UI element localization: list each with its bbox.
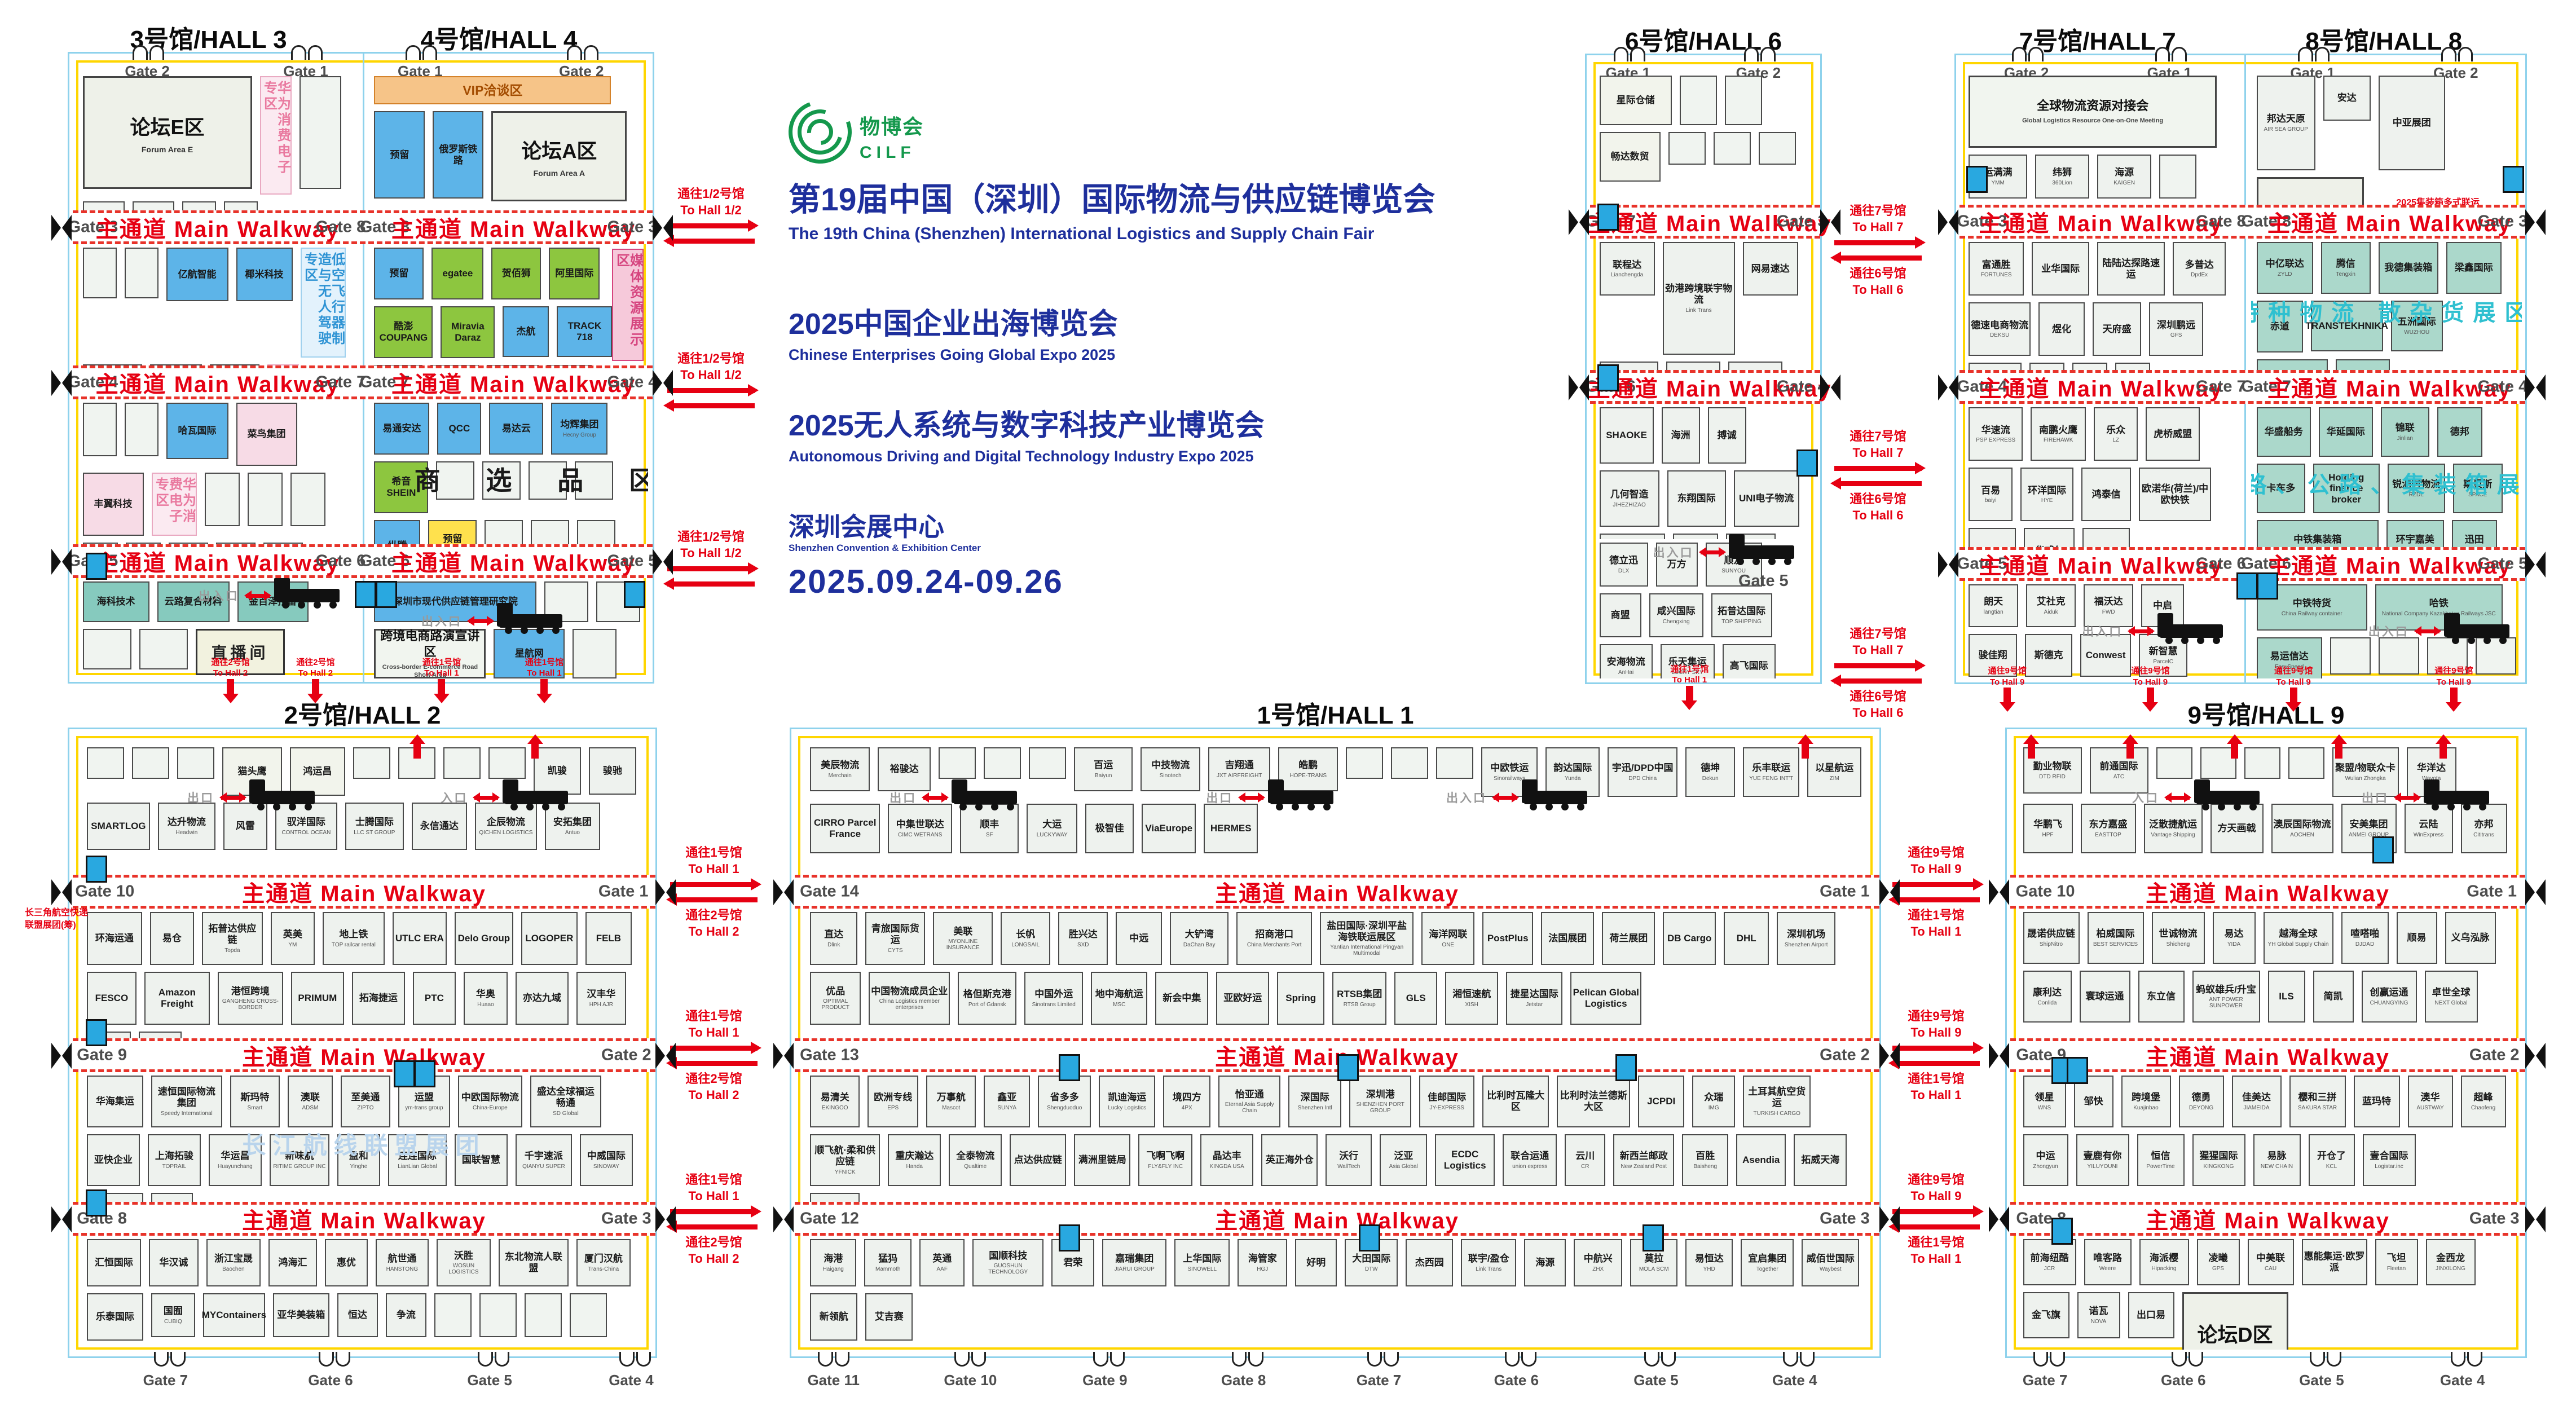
connector-label: To Hall 1 [688, 1025, 739, 1041]
booth: 驭洋国际CONTROL OCEAN [275, 803, 337, 850]
booth-name: 斯玛特 [240, 1092, 269, 1103]
booth: 美辰物流Merchain [810, 747, 870, 791]
booth: 华奥Huaao [464, 972, 508, 1025]
booth: 星际仓储 [1600, 76, 1672, 125]
booth-name-en: National Company Kazakhstan Railways JSC [2382, 611, 2496, 617]
folding-door-icon [51, 215, 72, 241]
gate-door-icon [319, 1352, 350, 1367]
main-walkway: Gate 8主通道 Main WalkwayGate 3 [73, 1202, 655, 1236]
booth-name: 新西兰邮政 [1620, 1151, 1668, 1162]
folding-door-icon [773, 879, 794, 905]
booth: 长帆LONGSAIL [1001, 912, 1050, 965]
hall-connector: 通往9号馆To Hall 9通往1号馆To Hall 1 [1892, 1172, 1980, 1267]
booth-name: 越海全球 [2279, 928, 2318, 940]
booth-name: UTLC ERA [395, 933, 444, 944]
folding-door-icon [655, 879, 676, 905]
booth: 丰翼科技 [83, 473, 144, 536]
booth-name: Delo Group [458, 933, 510, 944]
train-silhouette-icon [1731, 545, 1794, 559]
booth-name-en: ZIM [1830, 775, 1839, 782]
booth-name: 多普达 [2185, 259, 2214, 271]
red-double-arrow-icon [221, 796, 245, 800]
booth-name: 驭洋国际 [287, 817, 325, 828]
booth-name-en: MSC [1113, 1002, 1125, 1008]
booth-name: 几何智造 [1610, 489, 1649, 500]
gate-label: Gate 9 [77, 1046, 127, 1065]
expo3-title-cn: 2025无人系统与数字科技产业博览会 [789, 402, 1265, 444]
booth: Conwest [2080, 634, 2131, 677]
booth-name: 义乌泓脉 [2451, 932, 2490, 944]
booth: 荷兰展团 [1602, 912, 1655, 965]
gate-label: Gate 3 [2469, 1210, 2520, 1228]
connector-label: To Hall 1 [688, 861, 739, 878]
booth: QCC [437, 403, 481, 455]
arrow-right-icon [1834, 663, 1922, 668]
booth-name: QCC [449, 423, 470, 434]
blue-marker [1796, 450, 1818, 477]
booth: 裕骏达 [878, 747, 931, 791]
blue-marker [2067, 1057, 2088, 1084]
booth-name-en: Together [1756, 1266, 1778, 1272]
booth-name: 厦门汉航 [584, 1253, 623, 1264]
booth-name: 土耳其航空货运 [1745, 1086, 1808, 1108]
booth-name: 鸿运昌 [303, 766, 332, 777]
booth-name-en: EASTTOP [2095, 832, 2121, 838]
booth-name: 锦联 [2396, 422, 2415, 434]
booth: 东北物流人联盟 [499, 1239, 569, 1286]
booth-name: 汉丰华 [587, 989, 615, 1000]
booth: 顺飞航·柔和供应链YFNICK [810, 1134, 880, 1186]
booth-name-en: LianLian Global [398, 1164, 437, 1170]
train-icon: 出入口 [1653, 544, 1794, 561]
booth: 富通胜FORTUNES [1969, 242, 2024, 296]
booth: 英正海外仓 [1261, 1134, 1318, 1186]
booth-name-en: Sinotech [1160, 773, 1182, 779]
booth-name: 椰米科技 [245, 269, 284, 280]
booth: 国顺科技GUOSHUN TECHNOLOGY [972, 1239, 1043, 1286]
gate-label: Gate 2 [601, 1046, 651, 1065]
booth-name: 易达云 [502, 423, 531, 434]
booth-name-en: HGJ [1257, 1266, 1268, 1272]
booth-name: 德速电商物流 [1971, 320, 2028, 331]
arrow-left-icon [1834, 481, 1922, 486]
booth-name: 环洋国际 [2028, 485, 2066, 496]
hall-3-4: Gate 2Gate 1Gate 1Gate 2Gate 3主通道 Main W… [68, 52, 654, 684]
booth: 拓威天海 [1794, 1134, 1847, 1186]
booth: PRIMUM [291, 972, 344, 1025]
hall-connector: 通往7号馆To Hall 7通往6号馆To Hall 6 [1834, 203, 1922, 298]
booth: 多普达DpdEx [2173, 242, 2226, 296]
walkway-label: 主通道 Main Walkway [1215, 875, 1459, 908]
booth-name-en: QICHEN LOGISTICS [479, 830, 532, 836]
booth-name-en: RZDL [2409, 492, 2424, 498]
booth-name-en: WUZHOU [2404, 329, 2429, 336]
booth-name-en: Jetstar [1526, 1002, 1543, 1008]
booth [573, 629, 617, 678]
booth [434, 1293, 472, 1337]
booth-name: 中远 [1129, 933, 1148, 944]
booth: 百易baiyi [1969, 468, 2013, 521]
walkway-label: 主通道 Main Walkway [242, 1039, 486, 1072]
booth-name: 百运 [1094, 760, 1113, 771]
booth: 鸿海汇 [268, 1239, 317, 1286]
walkway-label: 主通道 Main Walkway [2146, 875, 2390, 908]
booth: 环洋国际HYE [2020, 468, 2073, 521]
booth-name-en: WallTech [1337, 1164, 1360, 1170]
booth-name-en: Headwin [175, 830, 197, 836]
connector-label: To Hall 9 [1910, 1188, 1961, 1205]
booth-name: 亿航智能 [178, 269, 217, 280]
booth-name: PTC [425, 993, 444, 1004]
booth-name: 中国外运 [1034, 989, 1073, 1000]
connector-label: 通往7号馆 [1850, 626, 1906, 642]
booth-name-en: Waybest [1820, 1266, 1842, 1272]
booth: 争流 [386, 1293, 426, 1337]
red-double-arrow-icon [2396, 796, 2419, 800]
booth-name-en: CUBIQ [164, 1319, 182, 1325]
booth: 畅达数贸 [1600, 132, 1661, 182]
booth [83, 248, 117, 298]
booth: 柏威国际BEST SERVICES [2088, 912, 2144, 964]
booth-name: 蚂蚁雄兵/升宝 [2196, 984, 2256, 995]
gate-label: Gate 2 [1820, 1046, 1870, 1065]
booth-name: 安拓集团 [553, 817, 592, 828]
booth-name: 中铁集装箱 [2293, 534, 2341, 545]
booth: 艾吉赛 [865, 1293, 913, 1341]
booth-name: 企辰物流 [487, 817, 525, 828]
booth-name-en: WNS [2038, 1105, 2051, 1111]
booth-name-en: Huaao [477, 1002, 494, 1008]
folding-door-icon [51, 370, 72, 396]
booth: 亿航智能 [166, 248, 228, 301]
booth-name-en: AAF [936, 1266, 947, 1272]
booth-name: 飞啊飞啊 [1146, 1151, 1184, 1162]
booth-name: 易达 [2225, 928, 2244, 940]
booth-name: 顺易 [2407, 932, 2427, 944]
train-silhouette-icon [954, 791, 1017, 804]
booth-name: ECDC Logistics [1437, 1149, 1492, 1171]
booth-name: 华洋达 [2417, 763, 2446, 774]
booth-name-en: CIMC WETRANS [898, 832, 942, 838]
booth-name-en: FLY&FLY INC [1148, 1164, 1183, 1170]
booth: 亦邦Cititrans [2461, 804, 2507, 853]
booth [436, 461, 474, 500]
booth: 中铁集装箱China Railway container [2257, 520, 2379, 547]
train-silhouette-icon [2446, 624, 2509, 638]
gate-label: Gate 1 [598, 883, 649, 901]
booth: 易脉NEW CHAIN [2253, 1134, 2301, 1186]
booth-name: 宜启集团 [1748, 1253, 1786, 1264]
blue-marker [86, 856, 107, 883]
booth: 陆陆达探路速运 [2097, 242, 2165, 296]
entrance-exit-label: 出入口 [1653, 544, 1694, 561]
booth: 阿里国际 [549, 248, 600, 299]
blue-marker [1597, 204, 1619, 231]
booth-name-en: Merchain [829, 773, 852, 779]
arrow-label: To Hall 1 [1672, 675, 1707, 686]
booth-name: 金西龙 [2436, 1253, 2465, 1264]
booth: 德坤Dekun [1685, 747, 1735, 797]
connector-label: To Hall 1 [1910, 1087, 1961, 1104]
booth: 天府盛 [2093, 302, 2141, 356]
booth-name: ViaEurope [1145, 823, 1192, 834]
booth: DHL [1724, 912, 1769, 965]
booth: 隆宏 [151, 1193, 193, 1202]
booth-name-en: Weere [2099, 1266, 2116, 1272]
booth-name: 创赢运通 [2370, 987, 2408, 998]
booth-name-en: DpdEx [2191, 272, 2208, 278]
main-walkway: Gate 4主通道 Main WalkwayGate 7Gate 7主通道 Ma… [73, 365, 653, 399]
booth-name-en: HPH AJR [589, 1002, 613, 1008]
booth-name: 哈瓦国际 [178, 425, 217, 437]
folding-door-icon [1938, 209, 1958, 235]
booth: UTLC ERA [393, 912, 447, 965]
booth: 省多多Shengduoduo [1038, 1076, 1091, 1127]
booth-name: 以星航运 [1815, 763, 1853, 774]
booth: 易达YIDA [2213, 912, 2256, 964]
gate-label: Gate 4 [2440, 1372, 2485, 1389]
booth-name-en: ShipNitro [2040, 941, 2063, 948]
gate-label: Gate 6 [1494, 1372, 1539, 1389]
booth-section: 海港Haigang猛犸Mammoth英通AAF国顺科技GUOSHUN TECHN… [804, 1236, 1870, 1350]
booth-name: 海港 [824, 1253, 843, 1264]
booth: Dynasty Shipping LLC [2257, 359, 2328, 370]
booth: 虎桥威盟 [2146, 407, 2200, 461]
booth-name-en: FORTUNES [1981, 272, 2012, 278]
booth: 中国外运Sinotrans Limited [1024, 972, 1083, 1025]
booth-name: 虎桥威盟 [2154, 429, 2192, 440]
booth-name: 满洲里链局 [1078, 1154, 1126, 1166]
blue-marker [1615, 1054, 1637, 1081]
booth-section: 邦达天原AIR SEA GROUP安达中亚展团论坛C区Forum Area C2… [2251, 72, 2522, 205]
booth-name-en: Speedy International [161, 1110, 213, 1117]
booth: 格但斯克港Port of Gdansk [958, 972, 1016, 1025]
booth: 猛犸Mammoth [864, 1239, 911, 1286]
booth-name: 国顺科技 [989, 1250, 1027, 1262]
booth-name: 易恒达 [1695, 1253, 1724, 1264]
booth: 亚快企业 [87, 1134, 140, 1186]
direction-arrow [2227, 734, 2243, 759]
gate-label: Gate 8 [316, 218, 366, 237]
booth-name: 风雷 [236, 821, 255, 832]
red-double-arrow-icon [1494, 796, 1517, 800]
booth-name-en: YMM [1992, 180, 2005, 186]
booth: 境四方4PX [1163, 1076, 1210, 1127]
booth-name: Conwest [2086, 650, 2126, 661]
booth: 华威尔HUAWEIER [2024, 528, 2075, 547]
gate-label: Gate 10 [2016, 883, 2075, 901]
booth-name-en: Shicheng [2167, 941, 2190, 948]
blue-marker [2257, 572, 2278, 600]
arrow-label: 通往2号馆 [296, 657, 334, 668]
booth: Miravia Daraz [441, 306, 495, 358]
booth [529, 461, 567, 500]
booth-name: 沃行 [1339, 1151, 1358, 1162]
booth-name: 士腾国际 [355, 817, 394, 828]
booth-name: 韵达国际 [1553, 763, 1592, 774]
booth: 新会中集 [1155, 972, 1208, 1025]
booth-name-en: CONTROL OCEAN [281, 830, 331, 836]
booth: 海管家HGJ [1238, 1239, 1287, 1286]
arrow-label: 通往1号馆 [422, 657, 461, 668]
booth-name: 寰球运通 [2086, 991, 2124, 1002]
booth-section: SHAOKE海洲搏诚几何智造JIHEZHIZAO东翔国际UNI电子物流飞得快供应… [1594, 404, 1817, 539]
folding-door-icon [2525, 374, 2546, 400]
booth-name-en: SPACE [2468, 492, 2487, 498]
train-silhouette-icon [1270, 791, 1333, 804]
gate-label: Gate 7 [2196, 378, 2246, 396]
booth: 哈瓦国际 [166, 403, 228, 459]
booth: 连连国际LianLian Global [388, 1134, 447, 1186]
booth-name: 新味航 [285, 1151, 314, 1162]
folding-door-icon [1569, 374, 1589, 400]
booth: 壹鹿有你YILUYOUNI [2076, 1134, 2129, 1186]
booth-name: 中欧铁运 [1490, 763, 1529, 774]
booth: 商盟 [1600, 593, 1641, 637]
booth: 中运Zhongyun [2023, 1134, 2068, 1186]
connector-label: To Hall 2 [688, 1251, 739, 1267]
booth-name: 盐田国际·深圳平盐海铁联运展区 [1322, 920, 1411, 942]
booth-name-en: QIANYU SUPER [522, 1164, 565, 1170]
booth-name: 湘恒速航 [1452, 989, 1491, 1000]
booth-name: 纬狮 [2053, 167, 2072, 178]
hall-connector: 通往9号馆To Hall 9通往1号馆To Hall 1 [1892, 1008, 1980, 1103]
booth [2115, 363, 2150, 370]
arrow-right-icon [1892, 1209, 1980, 1214]
booth [570, 1293, 607, 1337]
booth: 沃行WallTech [1326, 1134, 1372, 1186]
booth-name: Pelican Global Logistics [1573, 987, 1639, 1009]
booth-name: 美联 [953, 926, 972, 937]
booth-name: 德勇 [2192, 1092, 2211, 1103]
booth: 湘恒速航XISH [1445, 972, 1498, 1025]
booth: 极智佳 [1085, 804, 1134, 853]
booth: 艾社克Aiduk [2026, 584, 2076, 627]
booth-name: GLS [1406, 993, 1426, 1004]
arrow-right-icon [1892, 1046, 1980, 1051]
booth-name: 南鹏火鹰 [2039, 425, 2077, 436]
booth: 法国展团 [1541, 912, 1594, 965]
booth-name-en: Cititrans [2473, 832, 2494, 838]
gate-label: Gate 9 [1082, 1372, 1128, 1389]
booth-name: 永信通达 [420, 821, 459, 832]
arrow-left-icon [1892, 1061, 1980, 1066]
booth: 南鹏火鹰FIREHAWK [2031, 407, 2086, 461]
booth [2156, 747, 2192, 779]
booth-name-en: Fleetan [2387, 1266, 2406, 1272]
map-note: Gate 5 [1738, 572, 1789, 590]
folding-door-icon [1989, 1043, 2009, 1069]
booth-name-en: Asia Global [1389, 1164, 1418, 1170]
booth: 杰西园 [1406, 1239, 1453, 1286]
forum-area: 论坛C区Forum Area C [2257, 177, 2364, 205]
booth-name: 重庆瀚达 [895, 1151, 933, 1162]
gate-label: Gate 5 [607, 552, 658, 571]
booth-name: 福沃达 [2094, 596, 2123, 607]
venue-en: Shenzhen Convention & Exhibition Center [789, 543, 981, 554]
direction-arrow: 通往9号馆To Hall 9 [2274, 666, 2313, 712]
booth: 百运Baiyun [1074, 747, 1133, 791]
gate-door-icon [406, 45, 437, 60]
gate-label: Gate 3 [1820, 1210, 1870, 1228]
booth-section: 媒体资源展示区预留egatee贺佰狮阿里国际酷澎 COUPANGMiravia … [368, 244, 648, 365]
train-icon: 出入口 [2368, 623, 2509, 640]
booth: 中国物流成员企业China Logistics member enterpris… [869, 972, 950, 1025]
booth: 朗天langtian [1969, 584, 2018, 627]
booth: 贺佰狮 [491, 248, 541, 299]
booth: 凯迪海运Lucky Logistics [1099, 1076, 1155, 1127]
booth [1714, 132, 1751, 165]
booth: 易达云 [489, 403, 543, 455]
booth-name: 捷星达国际 [1511, 989, 1558, 1000]
booth-name: 全泰物流 [956, 1151, 994, 1162]
booth-name: 盈和 [349, 1151, 368, 1162]
entrance-exit-label: 出入口 [421, 612, 462, 629]
booth-name: 斯贝斯 [2463, 479, 2492, 490]
booth: 中航兴ZHX [1574, 1239, 1622, 1286]
connector-label: To Hall 1 [688, 1188, 739, 1205]
red-double-arrow-icon [469, 619, 492, 623]
booth: 点达供应链 [1010, 1134, 1066, 1186]
booth [1436, 747, 1473, 779]
booth-name: 华盛船务 [2265, 426, 2303, 438]
booth-name-en: BEST SERVICES [2093, 941, 2138, 948]
booth-name: 安美集团 [2350, 819, 2388, 830]
booth-name: 美辰物流 [821, 760, 859, 771]
booth-name-en: Smart [248, 1105, 263, 1111]
folding-door-icon [1879, 1043, 1900, 1069]
booth: 凌曦GPS [2197, 1239, 2240, 1285]
booth-name-en: RTSB Group [1344, 1002, 1376, 1008]
booth-name: 好明 [1306, 1257, 1326, 1268]
arrow-left-icon [1892, 1224, 1980, 1229]
booth: 晟诺供应链ShipNitro [2023, 912, 2080, 964]
folding-door-icon [1879, 879, 1900, 905]
booth: 德勇DEYONG [2179, 1076, 2224, 1127]
booth-name-en: PSP EXPRESS [1976, 437, 2015, 443]
booth [83, 629, 131, 669]
booth: 煜化 [2038, 302, 2085, 356]
folding-door-icon [51, 1043, 72, 1069]
booth-section: 易清关EKINGOO欧洲专线EPS万事航Mascot鑫亚SUNYA省多多Shen… [804, 1072, 1870, 1202]
booth-name: 拓威天海 [1801, 1154, 1839, 1166]
booth-name-en: GANGHENG CROSS-BORDER [220, 998, 281, 1011]
booth: 斯贝斯SPACE [2453, 464, 2503, 513]
booth-name-en: Baisheng [1693, 1164, 1717, 1170]
arrow-right-icon [670, 1046, 758, 1051]
booth: 大普国际DAP [1673, 534, 1718, 539]
booth: 大铲湾DaChan Bay [1170, 912, 1228, 965]
booth-name: 海源 [2115, 167, 2134, 178]
booth-name-en: EPS [887, 1105, 899, 1111]
entrance-exit-label: 出入口 [2368, 623, 2409, 640]
booth-name: 佳美达 [2242, 1092, 2271, 1103]
entrance-exit-label: 出口 [2362, 789, 2389, 806]
booth-name: 海科技术 [97, 596, 135, 607]
connector-label: To Hall 9 [1910, 861, 1961, 878]
arrow-label: 通往1号馆 [525, 657, 563, 668]
gate-door-icon [1614, 47, 1645, 61]
booth: 我德集装箱 [2379, 242, 2438, 294]
hall-connector: 通往7号馆To Hall 7通往6号馆To Hall 6 [1834, 429, 1922, 523]
booth-name: Holding finance broker [2315, 472, 2377, 505]
train-icon: 出入口 [1446, 789, 1587, 806]
booth-name-en: Port of Gdansk [968, 1002, 1006, 1008]
booth-name-en: XISH [1465, 1002, 1478, 1008]
booth-name: 航世通 [387, 1253, 416, 1264]
direction-arrow: 通往2号馆To Hall 2 [211, 657, 249, 703]
booth-name-en: YM [288, 942, 297, 948]
